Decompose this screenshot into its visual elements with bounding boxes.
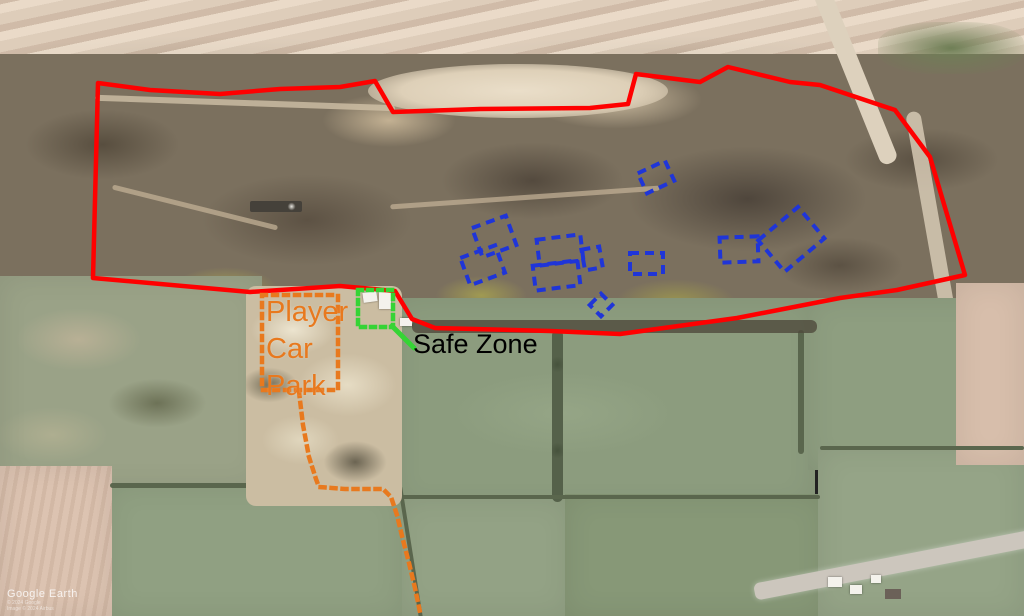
safe-zone-building [379, 292, 391, 309]
container-buildings [250, 201, 302, 212]
building [400, 318, 412, 326]
field-east-2 [818, 448, 1024, 616]
topright-vegetation [878, 22, 1024, 74]
car-park-label-line2: Car [266, 331, 348, 368]
imagery-line: Image © 2024 Airbus [7, 606, 78, 612]
imagery-attribution: Google Earth © 2024 Google Image © 2024 … [7, 588, 78, 612]
field-south-1 [398, 498, 570, 616]
ploughed-field-east [956, 283, 1024, 465]
car-park-label-line3: Park [266, 368, 348, 405]
building [885, 589, 901, 599]
google-earth-watermark: Google Earth [7, 588, 78, 600]
car-park-label-line1: Player [266, 294, 348, 331]
safe-zone-building [362, 291, 377, 303]
hedgerow [820, 446, 1024, 450]
building [850, 585, 862, 594]
car-park-label: Player Car Park [266, 294, 348, 405]
aerial-site-map: Player Car Park Safe Zone Google Earth ©… [0, 0, 1024, 616]
field-west [0, 276, 262, 488]
field-south-2 [565, 494, 823, 616]
building [871, 575, 881, 583]
safe-zone-label: Safe Zone [413, 329, 538, 360]
sand-quarry-patch [368, 64, 668, 118]
tree-line [552, 330, 563, 502]
hedgerow [400, 495, 820, 499]
building [828, 577, 842, 587]
hedgerow [798, 330, 804, 454]
